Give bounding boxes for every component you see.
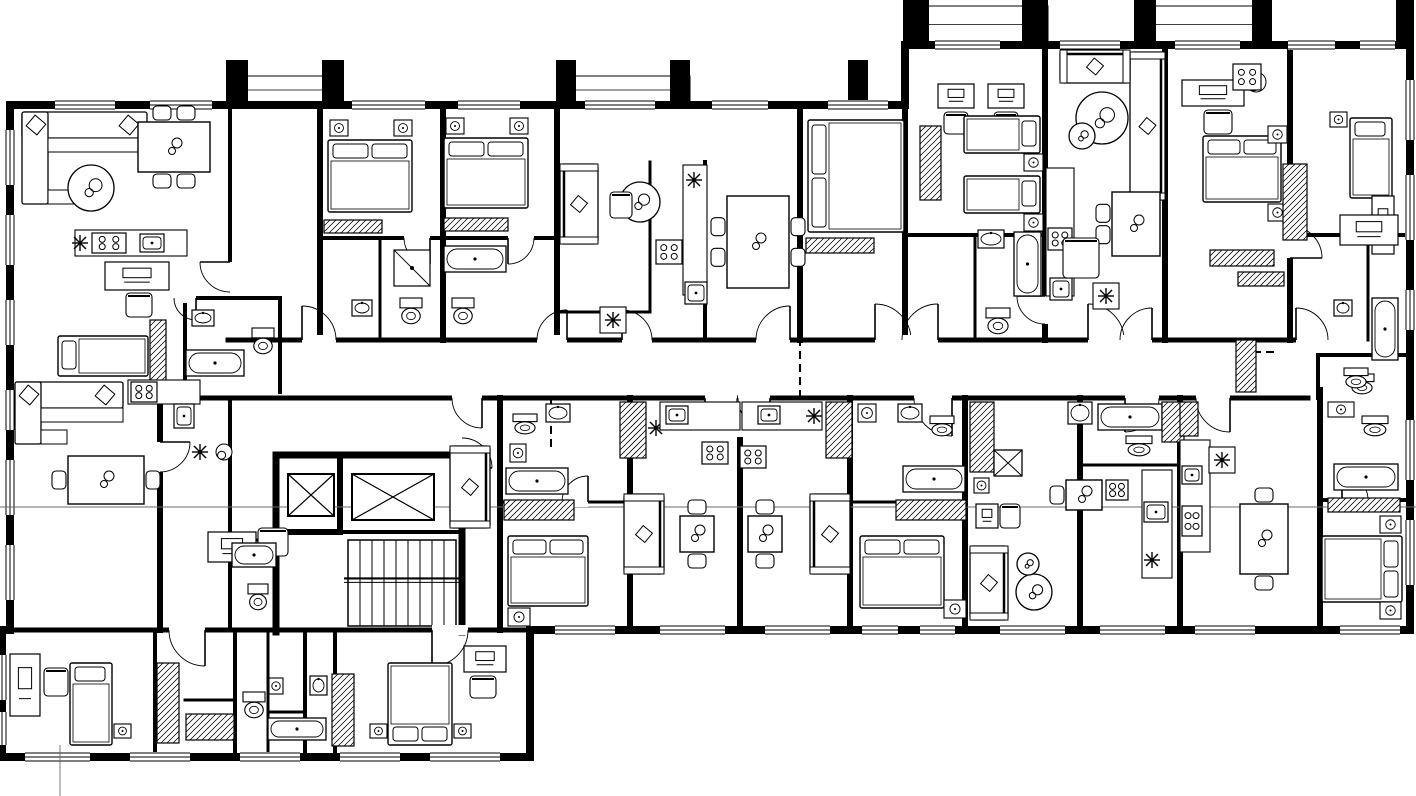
core-layer [288,474,460,626]
window-symbol [1360,40,1395,50]
kitchen-sink-symbol [1182,466,1202,484]
desk-symbol [988,84,1024,108]
wardrobe-symbol [157,663,179,743]
wardrobe-symbol [186,714,234,740]
wardrobe-symbol [970,402,994,472]
decor-plant-symbol [216,444,232,460]
door-swing [169,625,205,666]
nightstand-symbol [394,120,412,136]
ventilation-symbol [806,408,822,424]
wardrobe-symbol [324,220,382,233]
sofa-symbol [1060,50,1130,83]
window-symbol [0,655,7,700]
wardrobe-symbol [1236,340,1256,392]
wardrobe-symbol [806,238,874,253]
wardrobe-symbol [332,674,354,746]
stove-symbol [702,442,728,464]
kitchen-sink-symbol [666,406,688,424]
window-symbol [25,752,90,762]
toilet-symbol [986,308,1010,334]
sofa-symbol [1130,52,1165,200]
window-symbol [1405,420,1415,480]
wall-pier [322,60,344,105]
kitchen-sink-symbol [1144,502,1168,522]
dining-table-symbol [1096,192,1160,256]
dining-table-symbol [748,500,782,568]
window-symbol [5,215,15,265]
door-swing [1120,308,1152,345]
window-symbol [828,100,888,110]
window-symbol [55,100,115,110]
toilet-symbol [452,298,474,324]
dining-table-symbol [680,500,714,568]
bathtub-symbol [1014,232,1041,296]
window-symbol [458,100,520,110]
single-bed-symbol [70,663,112,745]
single-bed-symbol [58,336,148,376]
toilet-symbol [1362,416,1388,436]
single-bed-symbol [1350,118,1392,198]
nightstand-symbol [508,608,530,626]
dining-table-symbol [1240,488,1288,590]
elevator-shaft [352,474,434,520]
door-swing [432,625,468,666]
dining-table-symbol [1050,480,1102,510]
ventilation-symbol [72,235,88,251]
bathtub-symbol [1372,298,1398,360]
wardrobe-symbol [444,218,508,231]
window-symbol [585,100,655,110]
chair-symbol [1000,504,1020,528]
bathtub-symbol [268,718,326,740]
nightstand-symbol [454,724,471,738]
bathtub-symbol [232,543,276,567]
window-symbol [1405,520,1415,585]
nightstand-symbol [370,724,387,738]
floor-plan-svg [0,0,1416,796]
door-swing [537,310,567,345]
stove-symbol [1106,480,1128,500]
desk-symbol [10,654,40,716]
wall-pier [226,60,248,105]
bathroom-sink-symbol [192,310,214,326]
double-bed-symbol [388,663,452,745]
window-symbol [1405,80,1415,140]
door-swing [1088,304,1124,345]
window-symbol [555,625,615,635]
shower-symbol [394,250,430,286]
window-symbol [240,752,300,762]
bathroom-sink-symbol [546,404,570,422]
sofa-symbol [810,494,850,574]
kitchen-sink-symbol [758,406,780,424]
window-symbol [765,625,830,635]
stove-symbol [1233,64,1261,90]
nightstand-symbol [330,120,348,136]
chair-symbol [610,192,632,218]
sofa-symbol [560,164,598,244]
wall-pier [1396,0,1414,45]
window-symbol [660,625,725,635]
window-symbol [5,545,15,600]
wardrobe-symbol [504,500,574,520]
nightstand-symbol [1024,214,1043,231]
desk-symbol [938,84,974,108]
desk-symbol [1340,215,1398,245]
stove-symbol [656,240,682,264]
wall-pier [1022,0,1048,45]
wall-pier [903,0,929,45]
kitchen-sink-symbol [140,234,164,252]
double-bed-symbol [808,120,904,232]
door-swing [1296,308,1328,345]
staircase [344,540,460,626]
bathroom-sink-symbol [1334,300,1352,316]
window-symbol [1100,625,1165,635]
chair-symbol [44,668,68,696]
dining-table-symbol [52,456,160,504]
door-swing [200,262,235,292]
chair-symbol [1063,238,1099,278]
ventilation-symbol [686,172,702,188]
double-bed-symbol [1322,536,1402,602]
kitchen-sink-symbol [174,404,194,428]
wardrobe-symbol [1180,402,1198,436]
toilet-symbol [248,584,268,610]
kitchen-sink-symbol [1050,278,1072,300]
sofa-symbol [624,494,664,574]
door-swing [452,393,482,428]
wall-pier [1252,0,1272,45]
nightstand-symbol [114,724,131,738]
nightstand-symbol [1268,126,1287,143]
wardrobe-symbol [1283,164,1307,240]
window-symbol [1195,625,1255,635]
bathtub-symbol [1098,404,1162,430]
double-bed-symbol [328,140,412,212]
toilet-symbol [513,414,537,434]
dining-table-symbol [711,196,805,288]
wardrobe-symbol [1210,250,1274,266]
door-swing [508,233,534,264]
wardrobe-symbol [1238,272,1284,286]
window-symbol [1405,175,1415,240]
window-symbol [1288,40,1335,50]
washing-machine-symbol [1328,402,1354,417]
bathtub-symbol [903,466,965,492]
single-bed-symbol [964,176,1040,213]
door-swing [1017,296,1050,324]
double-bed-symbol [860,536,944,608]
corner-sofa-symbol [15,382,123,444]
ventilation-symbol [1144,552,1160,568]
nightstand-symbol [1330,112,1347,127]
kitchen-counter-symbol [683,165,707,295]
chair-symbol [126,293,152,317]
bathroom-sink-symbol [352,300,372,316]
toilet-symbol [1344,368,1368,388]
window-symbol [130,752,190,762]
double-bed-symbol [444,138,528,208]
desk-symbol [105,262,169,290]
round-table-symbol [1069,123,1095,149]
wall-pier [1134,0,1156,45]
floor-plan-page [0,0,1416,796]
toilet-symbol [400,298,422,324]
double-bed-symbol [508,536,588,606]
bathroom-sink-symbol [1068,402,1092,424]
door-swing [1196,393,1230,432]
window-symbol [352,100,425,110]
bathtub-symbol [1334,464,1398,490]
washing-machine-symbol [510,444,526,462]
duct-shaft-symbol [994,450,1022,476]
door-swing [155,442,190,472]
wall-pier [556,60,576,105]
window-symbol [340,752,400,762]
bathtub-symbol [186,350,244,376]
desk-symbol [976,504,998,528]
nightstand-symbol [510,118,528,134]
round-table-symbol [1017,553,1039,575]
washing-machine-symbol [858,404,876,422]
window-symbol [1340,625,1400,635]
bathroom-sink-symbol [310,676,327,695]
nightstand-symbol [1380,602,1401,619]
ventilation-symbol [600,307,626,333]
washing-machine-symbol [974,478,989,493]
wardrobe-symbol [896,500,966,520]
single-bed-symbol [964,116,1040,153]
round-table-symbol [68,165,114,211]
toilet-symbol [1126,436,1152,456]
stove-symbol [131,382,157,402]
kitchen-sink-symbol [685,282,707,304]
door-swing [756,306,790,345]
window-symbol [1405,290,1415,330]
window-symbol [1060,40,1120,50]
desk-symbol [464,646,506,672]
nightstand-symbol [1024,154,1043,171]
elevator-shaft [288,474,334,516]
ventilation-symbol [192,444,208,460]
double-bed-symbol [1203,136,1281,202]
window-symbol [862,625,898,635]
washing-machine-symbol [269,678,283,694]
wall-pier [848,60,868,105]
window-symbol [430,752,500,762]
wardrobe-symbol [920,126,941,200]
nightstand-symbol [446,118,464,134]
stove-symbol [1182,506,1202,536]
round-table-symbol [1016,574,1052,610]
nightstand-symbol [1380,516,1401,533]
ventilation-symbol [1209,447,1235,473]
toilet-symbol [243,692,265,718]
window-symbol [5,300,15,345]
nightstand-symbol [944,600,966,618]
bathroom-sink-symbol [898,404,922,422]
window-symbol [1175,40,1240,50]
toilet-symbol [252,328,274,354]
stove-symbol [740,446,766,468]
wardrobe-symbol [1328,498,1400,512]
wall-pier [670,60,690,105]
wardrobe-symbol [150,320,166,384]
bathtub-symbol [506,468,568,494]
window-symbol [935,40,1000,50]
window-symbol [5,390,15,430]
window-symbol [1000,625,1065,635]
bathtub-symbol [444,246,506,272]
sofa-symbol [450,446,490,528]
ventilation-symbol [1093,283,1119,309]
toilet-symbol [930,416,954,436]
window-symbol [5,130,15,185]
kitchen-counter-symbol [1142,470,1172,578]
chair-symbol [1204,110,1232,134]
wardrobe-symbol [620,402,646,458]
dining-table-symbol [138,106,210,188]
bathroom-sink-symbol [978,230,1004,248]
sofa-symbol [970,546,1008,620]
wardrobe-symbol [826,402,852,458]
window-symbol [0,712,7,745]
stove-symbol [92,233,126,253]
window-symbol [712,100,768,110]
window-symbol [920,625,955,635]
chair-symbol [470,676,496,698]
